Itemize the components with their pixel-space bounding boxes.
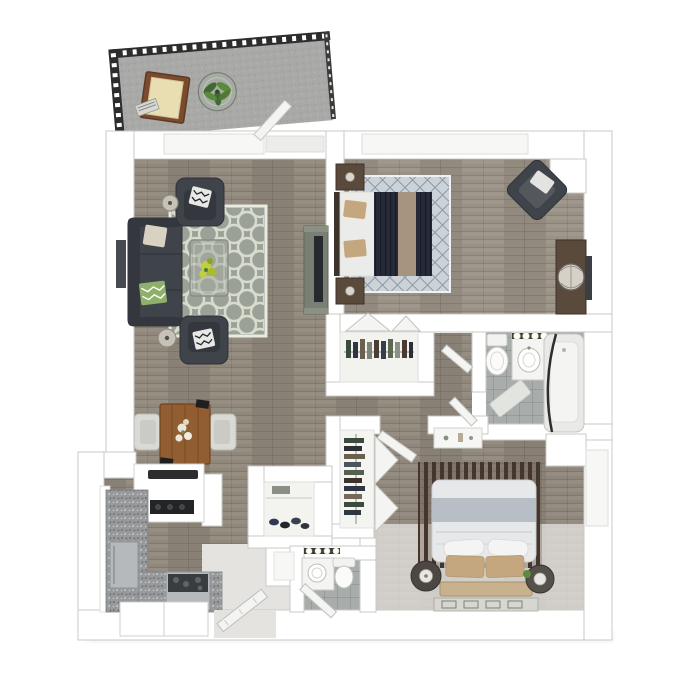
wall-closet2-right (314, 482, 332, 544)
dining-chair-left-seat (140, 420, 156, 444)
sofa-pillow-cream (143, 224, 168, 247)
small-plant (523, 570, 531, 578)
peninsula-sink (148, 470, 198, 479)
base-cabinets (120, 602, 208, 636)
master-headboard (440, 582, 532, 596)
wall-bath1-left-upper (472, 332, 486, 392)
coffee-table (190, 240, 228, 296)
burner (167, 504, 173, 510)
burner (155, 504, 161, 510)
bed-one (334, 192, 432, 276)
bathtub (544, 334, 584, 432)
vanity-bulb (324, 548, 330, 554)
pillow-tan-right (486, 555, 525, 577)
runner-rug (434, 598, 538, 611)
living-window (164, 134, 264, 154)
wall-art (116, 240, 126, 288)
sink-1 (518, 348, 540, 372)
wall-closet2-left (248, 466, 264, 544)
sofa (128, 218, 182, 326)
vanity-bulb (523, 333, 530, 340)
wall-right (584, 131, 612, 640)
bed1-runner (398, 192, 416, 276)
toilet-1 (486, 334, 508, 375)
nightstand-top (336, 164, 364, 190)
vanity-bulb (514, 333, 521, 340)
lamp (346, 173, 355, 182)
bed-blanket-band (432, 498, 536, 522)
toilet-2 (333, 558, 355, 588)
floor-plan-image (0, 0, 697, 697)
floor-lamp-bottom (158, 329, 176, 347)
floor-lamp-top (162, 195, 178, 211)
armchair-bottom (180, 316, 228, 364)
stored-box (272, 486, 290, 494)
vanity-bulb (532, 333, 539, 340)
media-console-tv (304, 226, 328, 314)
sink-2 (308, 564, 326, 582)
wall-mirror (585, 256, 592, 300)
wall-bath1-bottom (472, 424, 612, 440)
wall-master-notch (546, 434, 586, 466)
niche-interior (274, 552, 294, 580)
pillow-white-right (487, 539, 528, 558)
vanity-bulb (315, 548, 321, 554)
wall-kitchen-end (202, 474, 222, 526)
sofa-pillow-green (139, 280, 167, 305)
vanity-bulb (333, 548, 339, 554)
nightstand-bottom (336, 278, 364, 304)
balcony-slider-glass (266, 136, 324, 152)
vanity-bulb (306, 548, 312, 554)
floor-plan-page (0, 0, 697, 697)
faucet (527, 346, 530, 349)
armchair-top (176, 178, 224, 226)
dining-chair-right-seat (214, 420, 230, 444)
pillow-tan-left (446, 555, 485, 577)
vanity-1 (512, 332, 547, 380)
bed1-pillow-top (343, 200, 367, 220)
lamp (346, 287, 355, 296)
shoe-closet (264, 482, 314, 536)
dining-table (160, 399, 210, 467)
master-window (586, 450, 608, 526)
wall-shelf (434, 428, 482, 448)
drain (562, 348, 566, 352)
tv-screen (314, 236, 323, 302)
bed1-pillow-bottom (343, 239, 366, 258)
bedroom1-window (362, 134, 528, 154)
master-nightstand-left (411, 561, 441, 591)
burner (179, 504, 185, 510)
pillow-white-left (443, 539, 484, 558)
wall-closet1-bottom (326, 382, 434, 396)
lamp (534, 573, 546, 585)
